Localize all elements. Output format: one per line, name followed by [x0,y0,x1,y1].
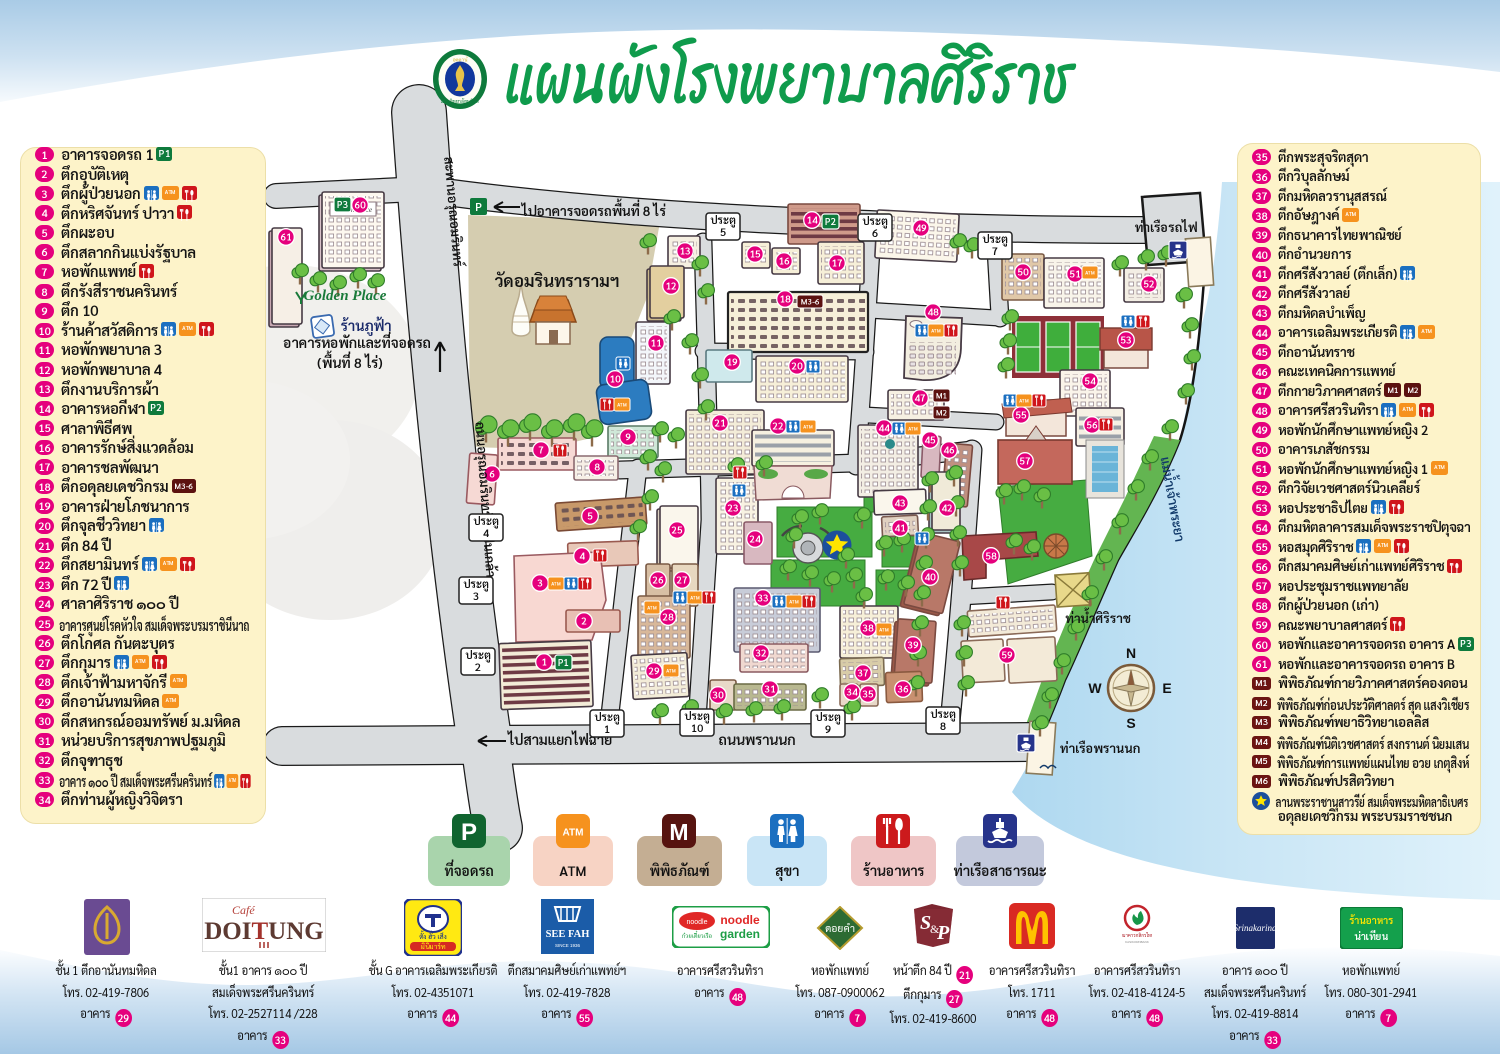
svg-text:33: 33 [757,591,768,604]
svg-text:23: 23 [727,501,738,514]
svg-text:น่าเทียน: น่าเทียน [1354,930,1388,943]
svg-text:4: 4 [483,525,490,540]
svg-text:อาคารหอพักและที่จอดรถ: อาคารหอพักและที่จอดรถ [283,331,431,352]
svg-text:6: 6 [872,225,879,240]
svg-text:8: 8 [940,718,947,733]
svg-text:27: 27 [676,573,688,586]
svg-text:ATM: ATM [803,425,813,431]
svg-text:31: 31 [764,682,776,695]
svg-text:21: 21 [714,416,726,429]
svg-text:P: P [936,922,950,944]
svg-text:1: 1 [604,721,610,736]
svg-text:14: 14 [806,213,818,226]
svg-text:15: 15 [749,247,760,260]
svg-text:55: 55 [1015,408,1026,421]
svg-text:ATM: ATM [1085,271,1095,277]
svg-text:Srinakarind: Srinakarind [1236,923,1275,933]
svg-text:M2: M2 [936,407,947,418]
svg-text:7: 7 [992,243,998,258]
svg-text:24: 24 [749,532,761,545]
svg-text:44: 44 [878,421,890,434]
svg-text:42: 42 [941,501,953,514]
svg-text:S: S [1126,715,1135,731]
svg-text:ถนนพรานนก: ถนนพรานนก [719,731,796,749]
svg-text:41: 41 [894,521,906,534]
svg-text:P: P [461,819,477,846]
svg-text:N: N [1126,645,1136,661]
svg-text:ATM: ATM [789,600,799,606]
svg-text:ATM: ATM [931,329,941,335]
svg-text:5: 5 [587,509,593,522]
svg-text:E: E [1162,680,1171,696]
svg-text:มหาวิทยาลัยมหิดล: มหาวิทยาลัยมหิดล [441,98,479,105]
svg-text:50: 50 [1017,265,1029,278]
svg-text:M3-6: M3-6 [801,296,819,307]
svg-text:48: 48 [927,305,939,318]
svg-text:noodle: noodle [686,919,707,926]
svg-text:W: W [1088,680,1102,696]
svg-text:7: 7 [538,443,544,456]
svg-text:10: 10 [609,372,621,385]
svg-text:Golden Place: Golden Place [304,288,387,304]
svg-text:ATM: ATM [551,582,561,588]
svg-text:29: 29 [648,664,660,677]
svg-text:P2: P2 [825,216,837,228]
svg-text:32: 32 [755,646,767,659]
svg-text:DOITUNG: DOITUNG [204,918,323,945]
svg-text:อตตานํ: อตตานํ [453,57,468,64]
svg-text:39: 39 [907,638,919,651]
svg-text:garden: garden [720,927,760,941]
svg-text:35: 35 [862,687,873,700]
svg-text:ท่าเรือรถไฟ: ท่าเรือรถไฟ [1135,218,1198,236]
svg-text:30: 30 [712,688,724,701]
svg-text:57: 57 [1019,454,1031,467]
svg-text:58: 58 [985,549,997,562]
svg-text:M: M [669,819,688,845]
svg-text:36: 36 [897,682,909,695]
svg-text:53: 53 [1120,333,1131,346]
svg-text:60: 60 [354,198,366,211]
svg-text:มินิมาร์ท: มินิมาร์ท [421,942,445,951]
svg-text:52: 52 [1143,277,1155,290]
svg-text:3: 3 [473,588,479,603]
svg-text:1: 1 [541,655,547,668]
svg-text:P3: P3 [337,199,348,211]
svg-text:noodle: noodle [720,913,760,927]
svg-text:ธนาคารกสิกรไทย: ธนาคารกสิกรไทย [1122,932,1152,939]
svg-text:P1: P1 [558,657,570,669]
svg-text:17: 17 [831,256,843,269]
svg-text:ATM: ATM [617,403,627,409]
svg-text:18: 18 [779,292,791,305]
svg-text:SINCE 1936: SINCE 1936 [555,943,581,948]
svg-text:37: 37 [857,666,869,679]
svg-text:ไปอาคารจอดรถพื้นที่ 8 ไร่: ไปอาคารจอดรถพื้นที่ 8 ไร่ [520,199,666,220]
svg-text:13: 13 [679,244,690,257]
svg-text:22: 22 [772,419,784,432]
svg-text:8: 8 [594,460,600,473]
svg-text:11: 11 [650,336,662,349]
svg-text:20: 20 [791,359,803,372]
svg-text:2: 2 [581,614,587,627]
svg-text:วัดอมรินทรารามฯ: วัดอมรินทรารามฯ [495,269,620,291]
svg-text:ดอยคำ: ดอยคำ [825,922,855,935]
svg-text:61: 61 [280,230,292,243]
svg-text:ร้านอาหาร: ร้านอาหาร [1349,914,1393,927]
svg-text:KASIKORNBANK: KASIKORNBANK [1125,940,1149,944]
svg-text:M1: M1 [936,390,947,401]
svg-text:54: 54 [1084,374,1096,387]
svg-text:10: 10 [691,720,704,735]
svg-text:51: 51 [1069,267,1081,280]
svg-text:9: 9 [625,430,631,443]
svg-text:ATM: ATM [879,628,889,634]
svg-text:ATM: ATM [690,596,700,602]
svg-text:ATM: ATM [908,427,918,433]
svg-text:3: 3 [537,576,543,589]
svg-text:4: 4 [579,549,585,562]
svg-text:47: 47 [914,391,926,404]
svg-text:45: 45 [924,433,935,446]
svg-text:2: 2 [475,659,482,674]
svg-text:26: 26 [652,573,664,586]
svg-text:ATM: ATM [563,828,584,839]
svg-text:(พื้นที่ 8 ไร่): (พื้นที่ 8 ไร่) [317,351,383,372]
svg-text:38: 38 [862,621,874,634]
svg-text:ท่าเรือพรานนก: ท่าเรือพรานนก [1060,740,1141,757]
svg-text:34: 34 [846,685,858,698]
svg-text:40: 40 [924,570,936,583]
svg-text:56: 56 [1086,418,1098,431]
svg-text:ATM: ATM [1019,399,1029,405]
svg-text:49: 49 [915,221,927,234]
svg-text:46: 46 [943,443,955,456]
svg-text:59: 59 [1001,648,1013,661]
svg-text:43: 43 [894,496,905,509]
svg-text:9: 9 [825,721,832,736]
svg-text:5: 5 [720,224,727,239]
svg-text:Café: Café [232,903,255,917]
svg-text:16: 16 [778,254,790,267]
svg-text:12: 12 [665,279,677,292]
svg-text:SEE FAH: SEE FAH [546,929,590,940]
svg-text:ATM: ATM [666,669,676,675]
svg-text:28: 28 [662,610,674,623]
svg-text:P: P [475,198,482,214]
svg-text:25: 25 [671,523,682,536]
svg-text:19: 19 [726,355,738,368]
svg-text:ATM: ATM [647,606,657,612]
